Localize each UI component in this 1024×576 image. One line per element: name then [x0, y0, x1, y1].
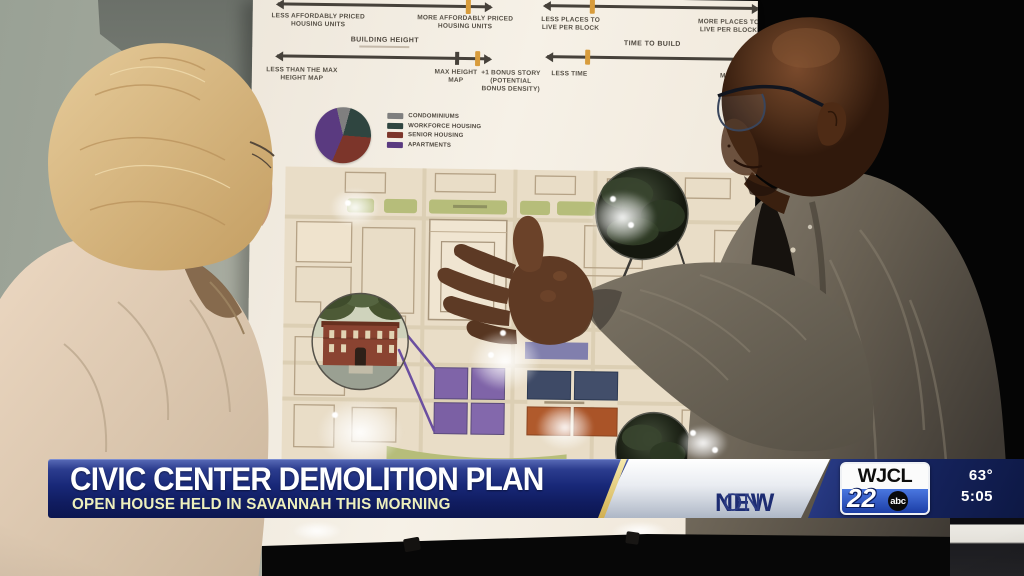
board-clip: [625, 531, 640, 545]
subheadline-text: OPEN HOUSE HELD IN SAVANNAH THIS MORNING: [72, 496, 621, 514]
station-logo: WJCL 22 abc: [840, 462, 930, 515]
glare-spark: [500, 330, 506, 336]
station-panel: WJCL 22 abc 63° 5:05: [806, 459, 1024, 518]
glare-spark: [345, 200, 351, 206]
tv-news-frame: LESS AFFORDABLY PRICED HOUSING UNITS MOR…: [0, 0, 1024, 576]
promo-text-rest: ON: [723, 489, 762, 518]
lapel-pin: [808, 225, 812, 229]
clock-readout: 5:05: [948, 488, 1006, 505]
shirt-button: [790, 247, 795, 252]
glare-spark: [712, 447, 718, 453]
abc-network-icon: abc: [888, 491, 908, 511]
station-channel-number: 22: [847, 483, 876, 514]
glare-spark: [690, 430, 696, 436]
board-clip: [403, 537, 421, 553]
station-channel-box: 22 abc: [842, 489, 928, 513]
glare-spark: [332, 412, 338, 418]
abc-network-label: abc: [890, 496, 905, 507]
headline-bar: CIVIC CENTER DEMOLITION PLAN OPEN HOUSE …: [48, 459, 648, 518]
glare-spark: [628, 222, 634, 228]
background-panel: [950, 518, 1024, 576]
glare-spark: [610, 196, 616, 202]
headline-text: CIVIC CENTER DEMOLITION PLAN: [70, 461, 591, 498]
temperature-readout: 63°: [952, 467, 1010, 484]
open-hand: [437, 216, 593, 345]
promo-bar: NEWON: [600, 459, 830, 518]
glare-spark: [488, 352, 494, 358]
lower-third-banner: CIVIC CENTER DEMOLITION PLAN OPEN HOUSE …: [0, 459, 1024, 518]
